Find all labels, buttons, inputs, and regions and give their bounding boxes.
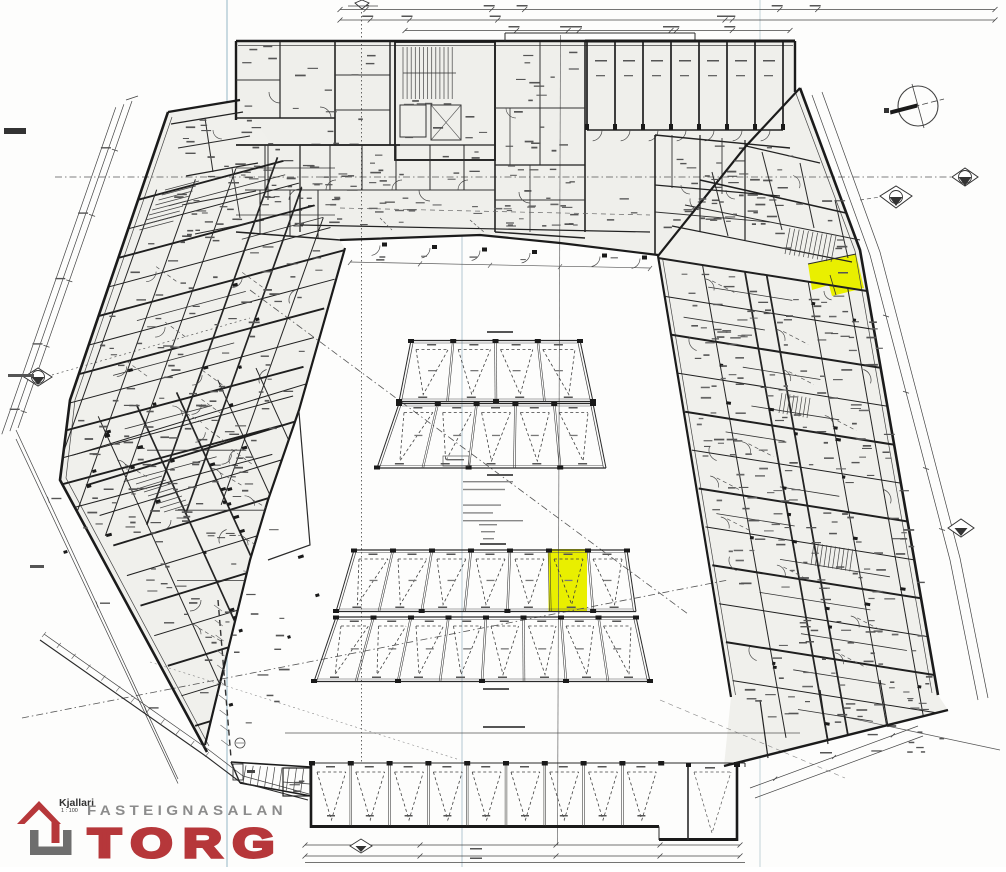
svg-text:1 : 100: 1 : 100	[61, 808, 78, 814]
svg-text:TORG: TORG	[88, 820, 285, 866]
svg-text:FASTEIGNASALAN: FASTEIGNASALAN	[87, 802, 287, 818]
